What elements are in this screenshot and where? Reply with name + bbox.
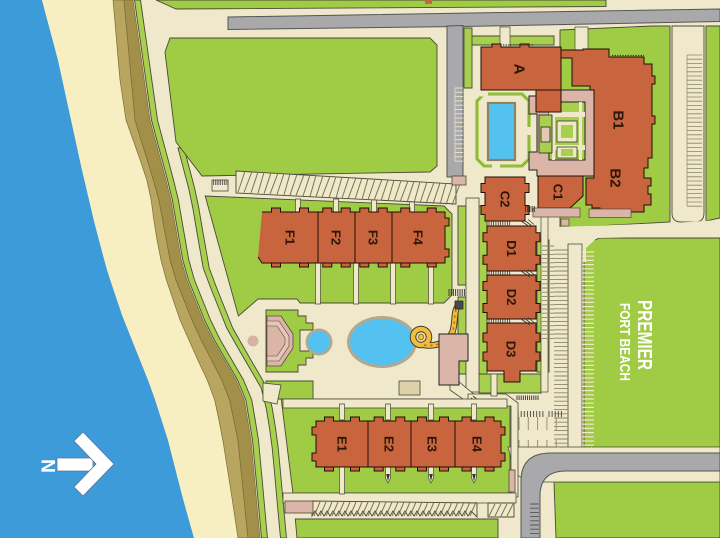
svg-text:D3: D3 (504, 341, 519, 358)
svg-text:E4: E4 (470, 436, 485, 453)
svg-text:D2: D2 (504, 289, 519, 306)
svg-text:E1: E1 (335, 436, 350, 452)
svg-text:D1: D1 (504, 240, 519, 257)
svg-text:A: A (511, 64, 528, 75)
svg-text:C2: C2 (498, 191, 513, 208)
svg-text:B1: B1 (610, 110, 627, 129)
svg-text:F1: F1 (283, 230, 298, 245)
svg-text:F4: F4 (411, 230, 426, 246)
svg-text:E2: E2 (382, 436, 397, 452)
svg-text:F2: F2 (329, 230, 344, 245)
svg-text:N: N (37, 459, 58, 473)
svg-text:E3: E3 (425, 436, 440, 452)
svg-text:B2: B2 (607, 168, 624, 187)
svg-text:C1: C1 (551, 184, 566, 201)
svg-text:FORT BEACH: FORT BEACH (616, 303, 632, 381)
svg-text:PREMIER: PREMIER (633, 300, 655, 370)
svg-text:F3: F3 (366, 230, 381, 245)
